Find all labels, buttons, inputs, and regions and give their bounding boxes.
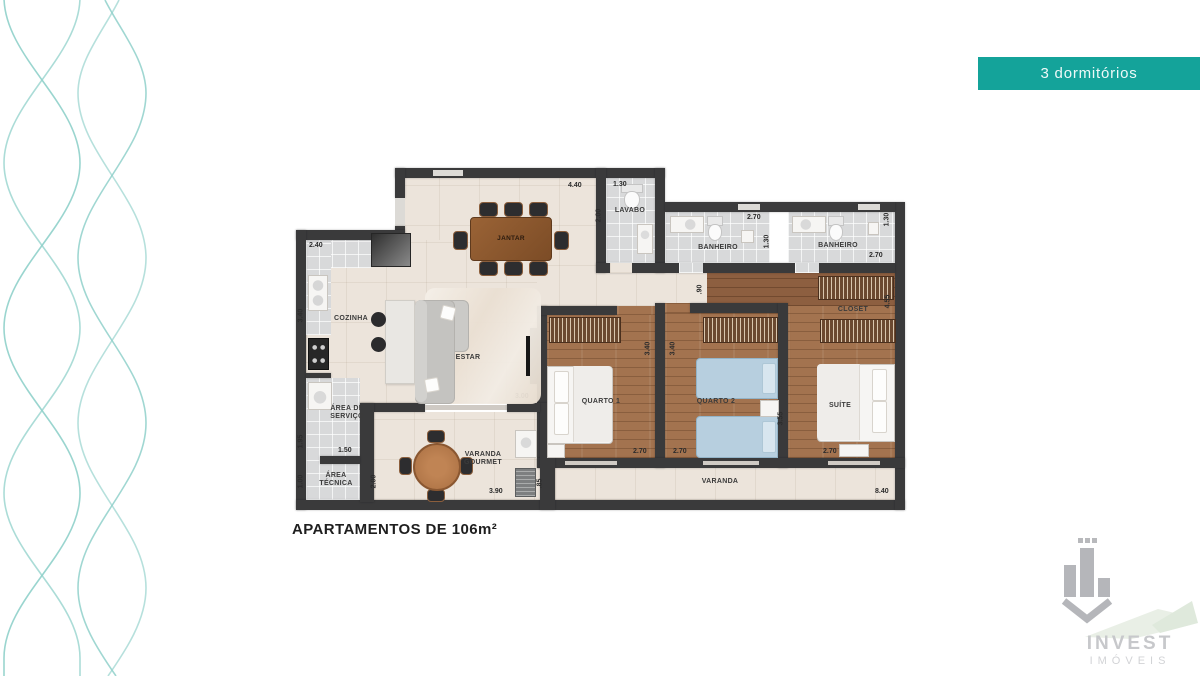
bathroom-counter [792,216,826,233]
bed-pillow [762,363,776,394]
bed-pillow [762,421,776,453]
bathroom-counter [670,216,704,233]
wall [320,456,360,464]
dim-cozinha-width: 2.40 [309,242,323,249]
dim-suite-height: 3.55 [777,412,784,426]
wall [507,403,540,412]
tv [526,336,530,376]
dim-jantar-width: 4.40 [568,182,582,189]
sliding-door [565,461,617,465]
wall [306,373,331,378]
wall [296,500,905,510]
dim-banheiro-social-height: 1.30 [763,235,770,249]
dim-gourmet-width: 3.90 [489,488,503,495]
dim-varanda-height: .85 [536,479,543,489]
grill [515,468,536,497]
bed-pillow [872,401,887,433]
toilet [829,224,843,241]
room-label-closet: CLOSET [823,306,883,314]
dim-cozinha-height: 3.40 [297,309,304,323]
dim-servico-width: 1.50 [338,447,352,454]
stool [371,312,386,327]
room-label-quarto2: QUARTO 2 [685,398,747,406]
door-opening [617,306,655,315]
door-opening [795,263,819,273]
wall [537,306,617,315]
room-label-banheiro-suite: BANHEIRO [805,242,871,250]
floor-plan: JANTAR 4.40 LAVABO 1.30 2.00 BANHEIRO 2.… [283,160,939,512]
window [858,204,880,210]
dim-tecnica-height: 1.00 [297,475,304,489]
kitchen-sink [308,275,328,311]
gourmet-chair [427,430,445,443]
dim-banheiro-suite-height: 1.30 [883,213,890,227]
room-label-area-tecnica: ÁREA TÉCNICA [314,472,358,488]
dining-chair [504,202,523,217]
room-label-varanda: VARANDA [690,478,750,486]
gourmet-round-table [413,443,461,491]
dim-closet-height: 4.55 [884,295,891,309]
brand-subtitle: IMÓVEIS [1055,655,1200,667]
dining-chair [504,261,523,276]
sliding-door [828,461,880,465]
window [738,204,760,210]
sliding-door [425,405,507,410]
window [433,170,463,176]
room-label-lavabo: LAVABO [610,207,650,215]
wall [690,303,778,313]
shower-drain [741,230,754,243]
dim-servico-height: 1.95 [297,435,304,449]
closet-rack [818,276,894,300]
bed-pillow [872,369,887,401]
gourmet-chair [399,457,412,475]
sink [637,224,653,254]
toilet [708,224,722,241]
floor-corridor [596,273,707,306]
room-label-cozinha: COZINHA [329,315,373,323]
sofa-pillow [424,377,440,393]
kitchen-island [385,300,415,384]
dim-banheiro-suite-width: 2.70 [869,252,883,259]
wall [395,168,405,198]
dim-quarto1-width: 2.70 [633,448,647,455]
dining-chair [453,231,468,250]
page: { "banner": { "label": "3 dormitórios", … [0,0,1200,676]
dim-quarto2-height: 3.40 [669,342,676,356]
wardrobe-quarto2 [703,317,778,343]
nightstand [760,400,779,417]
door-opening [665,303,690,313]
dim-quarto1-height: 3.40 [644,342,651,356]
dining-table: JANTAR [470,217,552,261]
wall [296,230,306,510]
window [395,198,405,226]
shower-head [868,222,879,235]
room-label-varanda-gourmet: VARANDA GOURMET [455,451,511,467]
dim-suite-width: 2.70 [823,448,837,455]
bed-pillow [554,403,569,435]
bench [839,444,869,457]
dim-banheiro-social-width: 2.70 [747,214,761,221]
room-label-area-servico: ÁREA DE SERVIÇO [323,405,371,421]
dim-hall: .90 [696,285,703,295]
dim-gourmet-height: 2.00 [370,475,377,489]
wardrobe-quarto1 [549,317,621,343]
sliding-door [703,461,759,465]
nightstand [547,444,565,458]
closet-rack [820,319,896,343]
wall [655,303,665,468]
stove [308,338,329,370]
dining-chair [479,202,498,217]
brand-logo: INVEST IMÓVEIS [1040,533,1200,673]
banner-dormitorios: 3 dormitórios [978,57,1200,90]
wall [596,263,895,273]
dim-quarto2-width: 2.70 [673,448,687,455]
wave-decoration [0,0,160,676]
dining-chair [529,202,548,217]
dining-chair [529,261,548,276]
banner-label: 3 dormitórios [1040,65,1137,82]
refrigerator [371,233,411,267]
bed-pillow [554,371,569,403]
room-label-estar: ESTAR [446,354,490,362]
door-opening [679,263,703,273]
room-label-banheiro-social: BANHEIRO [685,244,751,252]
gourmet-sink [515,430,537,458]
dim-varanda-width: 8.40 [875,488,889,495]
dim-lavabo-width: 1.30 [613,181,627,188]
wall [778,303,788,468]
wall [655,168,665,273]
room-label-suite: SUÍTE [810,402,870,410]
room-label-jantar: JANTAR [497,235,525,242]
room-label-quarto1: QUARTO 1 [569,398,633,406]
door-opening [610,263,632,273]
dim-lavabo-height: 2.00 [595,209,602,223]
dining-chair [554,231,569,250]
stool [371,337,386,352]
dining-chair [479,261,498,276]
plan-title: APARTAMENTOS DE 106m² [292,521,497,538]
brand-name: INVEST [1055,633,1200,655]
